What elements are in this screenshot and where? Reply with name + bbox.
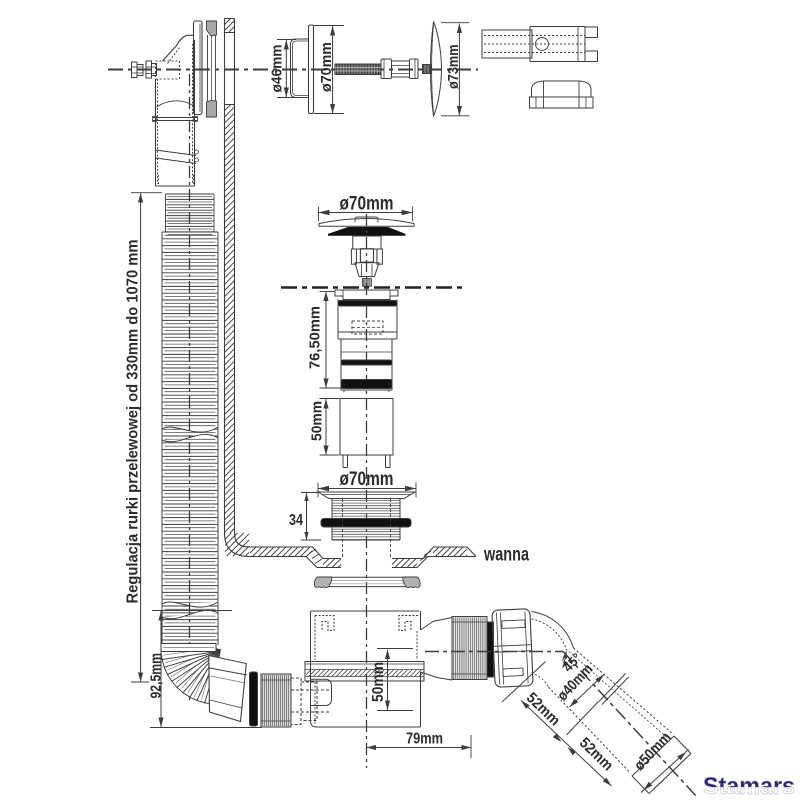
svg-text:50mm: 50mm [370, 662, 387, 702]
svg-text:ø46mm: ø46mm [269, 45, 286, 93]
svg-text:76,50mm: 76,50mm [307, 306, 324, 369]
svg-text:ø70mm: ø70mm [318, 42, 335, 92]
svg-text:79mm: 79mm [406, 731, 443, 748]
svg-text:wanna: wanna [483, 544, 529, 566]
svg-text:Stamars: Stamars [703, 773, 795, 800]
svg-text:34: 34 [289, 512, 303, 529]
svg-text:ø70mm: ø70mm [340, 469, 394, 490]
svg-text:Regulacja rurki przelewowej od: Regulacja rurki przelewowej od 330mm do … [125, 240, 142, 604]
svg-text:ø70mm: ø70mm [340, 194, 394, 215]
svg-text:92,5mm: 92,5mm [148, 653, 165, 699]
svg-text:50mm: 50mm [309, 401, 326, 441]
svg-text:ø73mm: ø73mm [445, 45, 462, 90]
